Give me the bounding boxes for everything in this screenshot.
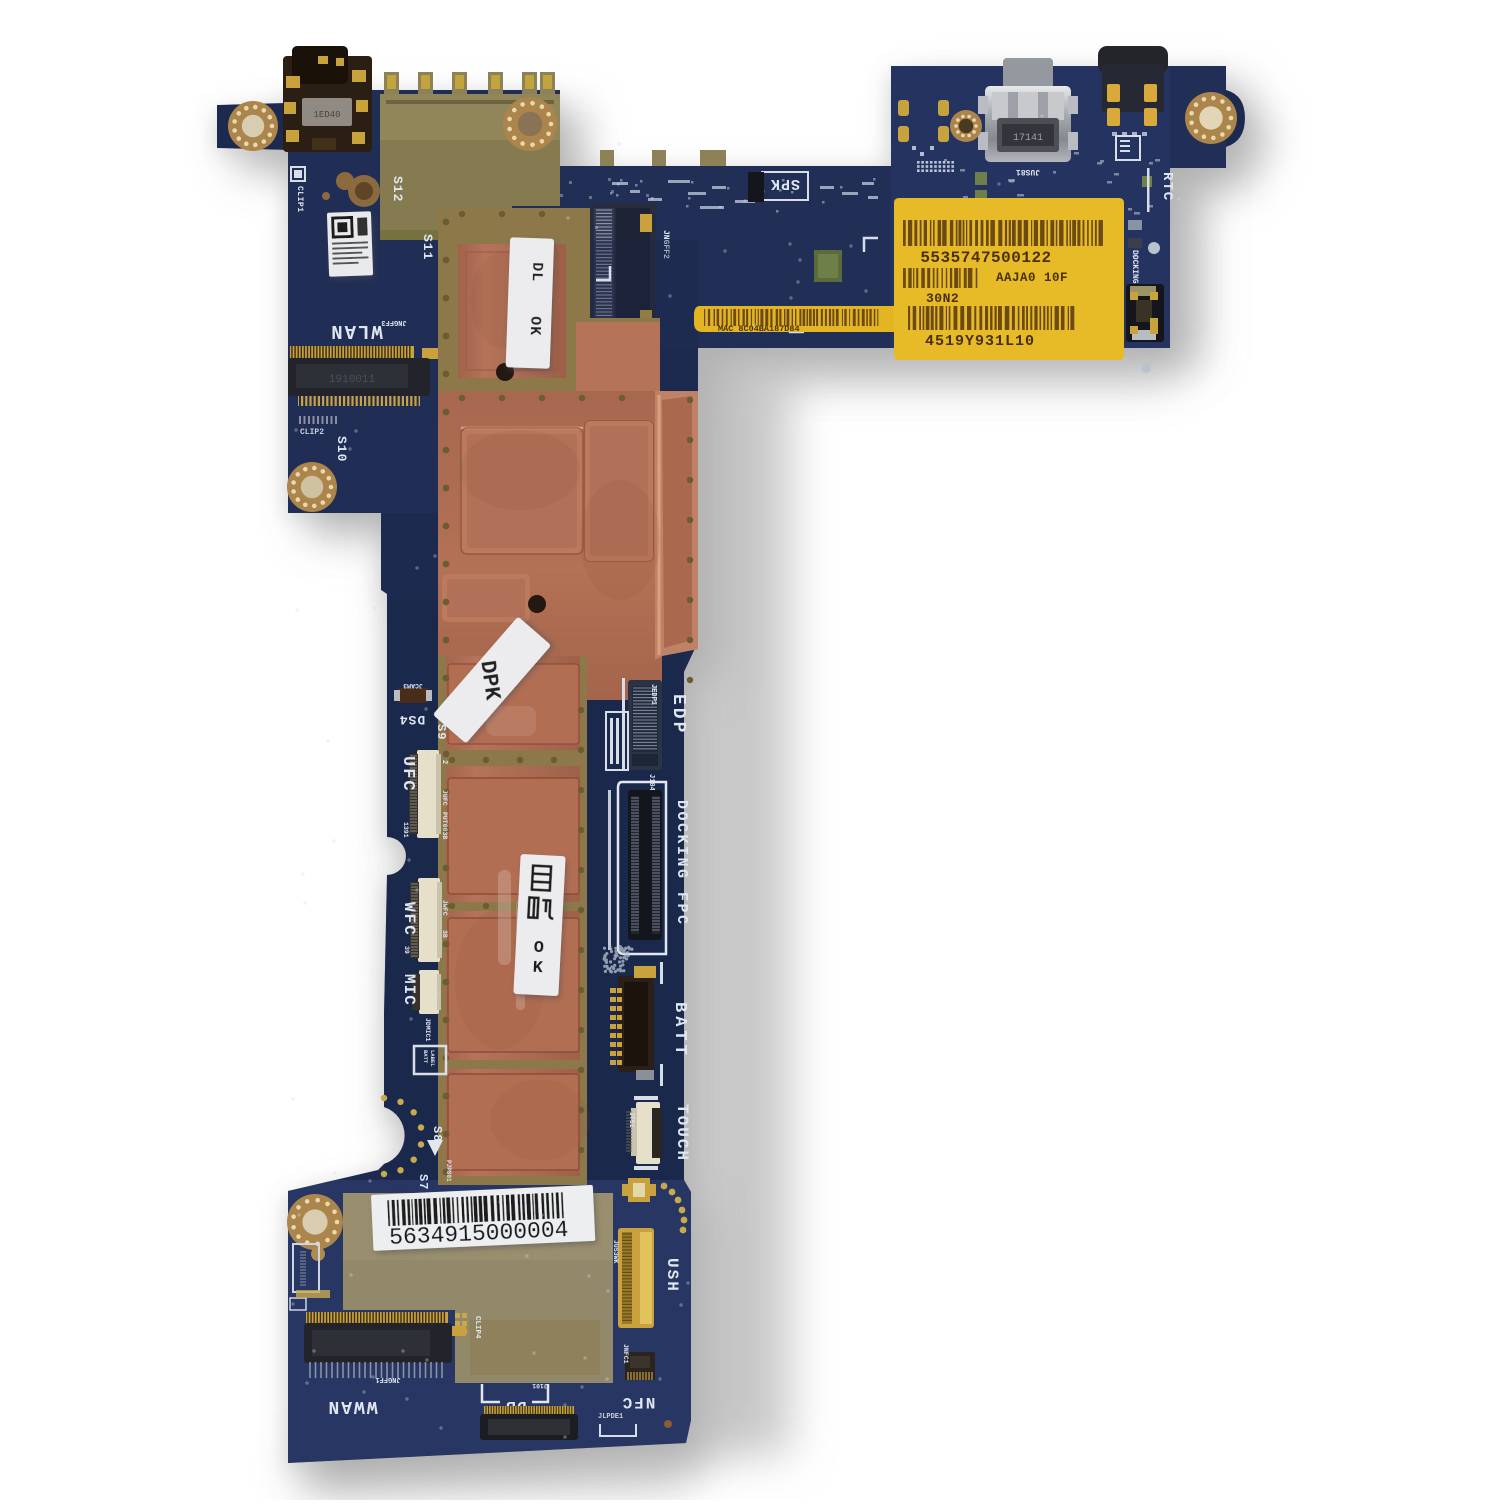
svg-text:3B: 3B bbox=[441, 930, 448, 938]
svg-text:JWFC: JWFC bbox=[441, 900, 448, 916]
svg-text:1391: 1391 bbox=[402, 822, 409, 838]
svg-text:4519Y931L10: 4519Y931L10 bbox=[925, 333, 1035, 350]
svg-text:CLIP2: CLIP2 bbox=[300, 428, 324, 437]
svg-text:2: 2 bbox=[440, 760, 448, 764]
svg-text:S12: S12 bbox=[390, 176, 405, 202]
svg-text:JEDP1: JEDP1 bbox=[649, 684, 657, 705]
svg-text:JLPDE1: JLPDE1 bbox=[598, 1413, 623, 1421]
svg-text:JNGFF3: JNGFF3 bbox=[381, 318, 406, 326]
svg-text:BATT: BATT bbox=[670, 1002, 689, 1059]
svg-text:OK: OK bbox=[526, 316, 544, 337]
svg-text:S8: S8 bbox=[430, 1126, 444, 1142]
svg-text:WLAN: WLAN bbox=[329, 320, 383, 342]
svg-text:USH: USH bbox=[663, 1258, 681, 1293]
svg-text:EDP: EDP bbox=[668, 694, 688, 735]
svg-text:JNGFF1: JNGFF1 bbox=[375, 1375, 400, 1383]
svg-text:LABEL: LABEL bbox=[429, 1050, 436, 1067]
svg-text:CLIP1: CLIP1 bbox=[295, 186, 304, 213]
svg-text:PJP801: PJP801 bbox=[445, 1160, 452, 1182]
svg-text:S9: S9 bbox=[434, 724, 448, 740]
svg-text:K: K bbox=[532, 959, 544, 979]
svg-text:JCAM3: JCAM3 bbox=[403, 682, 423, 689]
svg-text:S10: S10 bbox=[334, 436, 349, 462]
svg-text:MIC: MIC bbox=[400, 974, 418, 1006]
svg-text:S7: S7 bbox=[416, 1174, 430, 1190]
svg-text:JNFC1: JNFC1 bbox=[622, 1344, 629, 1364]
svg-text:DOCKING FPC: DOCKING FPC bbox=[673, 800, 690, 927]
svg-text:JUFC: JUFC bbox=[441, 790, 448, 806]
svg-text:JUS3WK: JUS3WK bbox=[612, 1240, 619, 1264]
svg-text:1910011: 1910011 bbox=[329, 374, 376, 386]
svg-text:WWAN: WWAN bbox=[326, 1396, 377, 1416]
svg-text:1ED40: 1ED40 bbox=[313, 110, 340, 120]
svg-text:J101: J101 bbox=[532, 1382, 548, 1389]
svg-text:JT51: JT51 bbox=[628, 1112, 635, 1128]
svg-text:CLIP4: CLIP4 bbox=[473, 1316, 481, 1339]
svg-text:O: O bbox=[533, 939, 544, 959]
svg-text:DS4: DS4 bbox=[399, 712, 425, 727]
svg-text:30N2: 30N2 bbox=[926, 291, 959, 306]
svg-text:WFC: WFC bbox=[400, 902, 418, 937]
svg-text:5535747500122: 5535747500122 bbox=[920, 249, 1051, 267]
svg-text:NFC: NFC bbox=[621, 1393, 656, 1411]
svg-text:SPK: SPK bbox=[770, 175, 800, 192]
svg-text:DL: DL bbox=[528, 262, 546, 283]
svg-text:BATT: BATT bbox=[422, 1050, 429, 1064]
svg-text:UFC: UFC bbox=[398, 756, 417, 793]
svg-text:AAJA0 10F: AAJA0 10F bbox=[996, 271, 1068, 285]
svg-text:TOUCH: TOUCH bbox=[673, 1104, 691, 1162]
svg-text:JUS81: JUS81 bbox=[1016, 167, 1040, 176]
svg-text:PUT003B: PUT003B bbox=[441, 812, 448, 839]
svg-text:JDMIC1: JDMIC1 bbox=[424, 1018, 431, 1042]
svg-text:S11: S11 bbox=[420, 234, 435, 260]
svg-text:RTC: RTC bbox=[1159, 172, 1175, 202]
svg-text:39: 39 bbox=[403, 946, 410, 954]
svg-text:MAC 8C04BA187D84: MAC 8C04BA187D84 bbox=[718, 324, 800, 334]
svg-text:17141: 17141 bbox=[1013, 133, 1043, 144]
